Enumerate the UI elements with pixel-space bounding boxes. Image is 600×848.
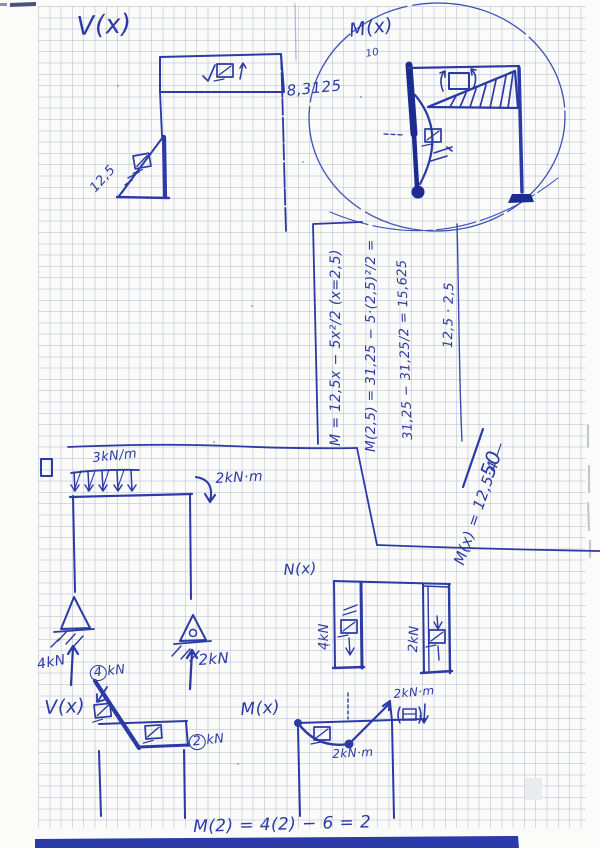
applied-moment-arrow: [196, 477, 215, 502]
unit: kN: [107, 662, 127, 679]
shear-slope: [95, 681, 139, 748]
right-reaction-arrow: [187, 650, 197, 689]
top-beam: [408, 66, 519, 68]
right-column: [190, 495, 191, 599]
calc-line-1: M = 12,5x − 5x²/2 (x=2,5): [329, 249, 344, 446]
pin-node: [412, 186, 425, 199]
scanned-notes-page: V(x) 8,3125 12,5 M(x) 10 M = 12,5x − 5x²…: [0, 0, 600, 848]
calc-line-2: M(2,5) = 31,25 − 5·(2,5)²/2 =: [364, 239, 378, 452]
frame-problem-sketch: [41, 459, 215, 689]
right-column: [519, 68, 522, 192]
bottom-shear-title: V(x): [44, 697, 86, 719]
axis: [99, 721, 187, 724]
left-reaction-arrow: [68, 646, 78, 685]
frame-sketch-circle: [305, 0, 569, 235]
applied-moment-label: 2kN·m: [215, 470, 263, 487]
rotation-arrow-left: [440, 71, 445, 91]
beam: [70, 494, 192, 497]
circled-value: 2: [188, 733, 206, 751]
top-shear-diagram-sketch: [117, 54, 286, 231]
ink-sketch-layer: [0, 0, 600, 848]
calc-line-4: 12,5 · 2,5: [442, 282, 457, 348]
load-arrows: [71, 471, 136, 491]
left-column: [409, 65, 414, 134]
right-support: [508, 194, 534, 203]
moment-box: [449, 73, 469, 89]
axial-title: N(x): [283, 561, 317, 579]
bottom-ink-band: [35, 836, 519, 848]
left-column: [73, 496, 75, 592]
pin-support: [61, 597, 90, 629]
bottom-moment-title: M(x): [240, 699, 281, 720]
bottom-shear-diagram-sketch: [91, 681, 189, 818]
moment-rise-line: [349, 701, 390, 744]
axial-diagram-sketch: [333, 581, 452, 673]
up-arrow: [240, 63, 246, 79]
unit: kN: [206, 731, 226, 748]
axial-right-label: 2kN: [407, 625, 422, 652]
check-mark: [203, 65, 215, 81]
rotation-arrow-right: [471, 69, 476, 89]
right-reaction-label: 2kN: [198, 651, 230, 669]
moment-sag-label: 2kN·m: [332, 746, 374, 761]
jump-icon: [398, 707, 400, 723]
circled-value: 4: [89, 664, 107, 682]
axial-left-label: 4kN: [318, 623, 332, 650]
top-shear-title: V(x): [76, 11, 132, 41]
